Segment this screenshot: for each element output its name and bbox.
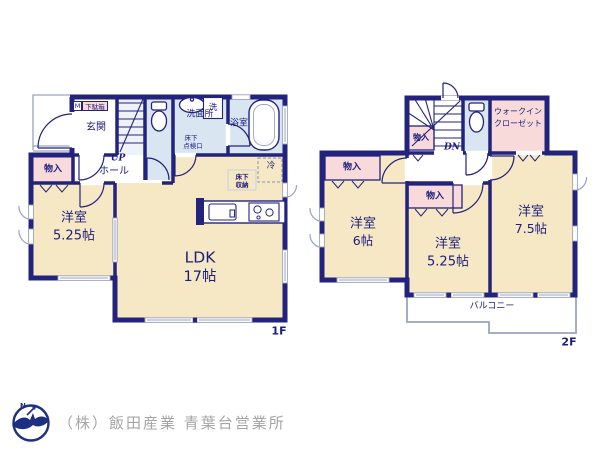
company-name-label: （株）飯田産業 青葉台営業所 [58,412,286,433]
wic-label-1: ウォークイン [494,108,542,116]
floor2-plan [310,83,587,333]
balcony-label: バルコニー [470,303,515,312]
up-label: UP [111,155,126,164]
casement-window-icon [310,208,319,221]
room6-size-label: 6帖 [353,235,373,248]
room525-size-label: 5.25帖 [427,256,469,269]
casement-window-icon [19,230,28,244]
kitchen-counter-icon [196,198,285,225]
f2-closet-left-label: 物入 [343,164,361,173]
hatch-label-2: 点検口 [183,143,203,150]
floorplan-page: M 下駄箱 玄関 物入 UP ホール 洗面所 洗 床下 点検口 浴室 冷 床下 … [0,0,600,450]
f2-hall-fill [407,153,490,183]
floor2-label: 2F [561,337,576,348]
f2-closet-stair-label: 物入 [413,134,429,142]
casement-window-icon [19,206,28,219]
room6-name-label: 洋室 [350,218,376,231]
f1-closet-label: 物入 [44,166,62,175]
toilet-tank-icon [152,102,167,110]
fridge-label: 冷 [267,162,276,171]
entrance-door-icon [38,114,72,148]
storage-label-1: 床下 [236,174,249,181]
bathroom-label: 浴室 [230,120,248,129]
ldk-name-label: LDK [185,250,216,266]
room525-name-label: 洋室 [435,238,461,251]
floor1-label: 1F [271,326,286,337]
toilet-tank-icon [469,103,484,111]
f2-toilet-fixture [469,103,484,132]
hall-label: ホール [99,167,129,177]
dn-label: DN [444,144,460,153]
toilet-bowl-icon [152,111,167,131]
shoe-m-label: M [73,101,82,111]
f2-closet-mid-label: 物入 [426,193,444,202]
faucet-icon [190,98,193,101]
bathtub-inner-icon [254,105,275,146]
wic-label-2: クローゼット [494,120,542,128]
ldk-size-label: 17帖 [184,270,217,285]
logo-n-label: N [20,402,26,410]
washer-label: 洗 [209,104,218,113]
casement-window-icon [310,234,319,247]
entrance-label: 玄関 [86,123,106,133]
room1-size-label: 5.25帖 [53,230,95,243]
hatch-label-1: 床下 [185,135,198,142]
toilet-bowl-icon [470,112,484,132]
shoe-box-label: 下駄箱 [82,101,108,111]
casement-window-icon [288,185,297,197]
storage-label-2: 収納 [236,182,249,189]
room75-name-label: 洋室 [518,206,544,219]
room1-name-label: 洋室 [61,212,87,225]
casement-window-icon [578,177,587,190]
floorplan-graphic [0,0,600,450]
floor1-plan [19,95,297,323]
room75-size-label: 7.5帖 [515,223,547,236]
iida-logo [12,406,49,441]
